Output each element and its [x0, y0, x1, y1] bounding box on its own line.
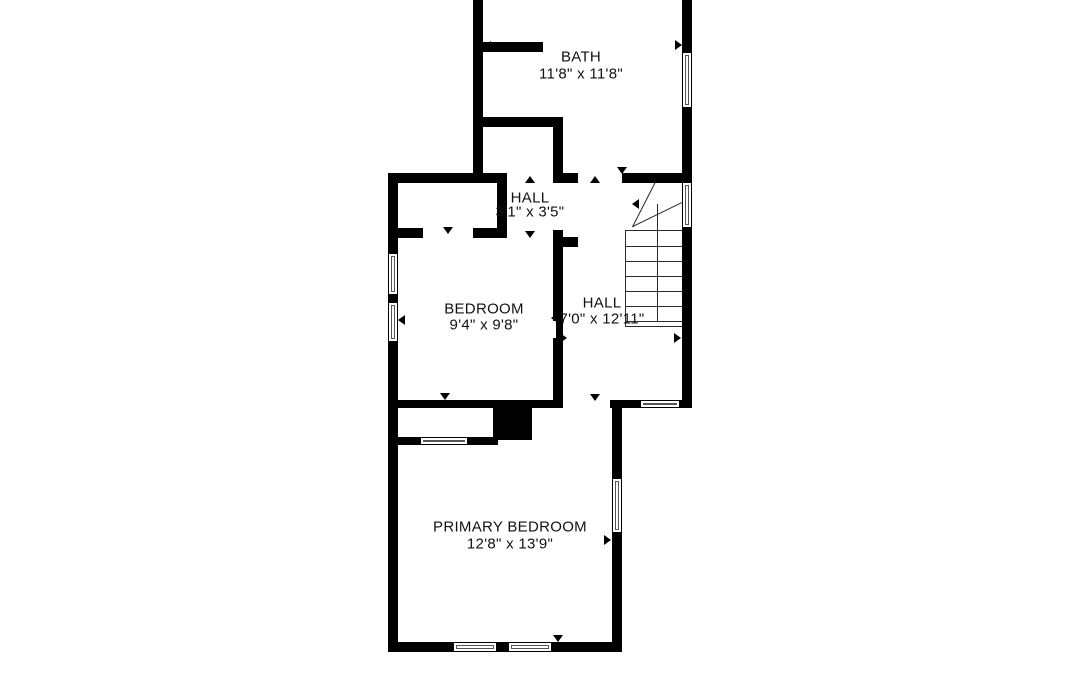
window-marker [388, 253, 398, 295]
window-pane [685, 55, 689, 105]
room-dims: 7'0" x 12'11" [559, 311, 644, 328]
window-marker [508, 642, 552, 652]
door-opening-marker [675, 40, 682, 50]
door-opening-marker [604, 535, 611, 545]
door-opening-marker [525, 231, 535, 238]
window-marker [612, 478, 622, 533]
wall [388, 173, 507, 183]
door-opening-marker [484, 41, 491, 51]
window-pane [423, 440, 465, 442]
wall [682, 108, 692, 183]
wall [612, 533, 622, 652]
wall [388, 400, 563, 408]
stair-tread [625, 276, 683, 277]
window-pane [643, 403, 677, 405]
wall [622, 173, 687, 183]
wall [553, 230, 563, 321]
wall [553, 173, 578, 183]
wall [563, 237, 578, 247]
window-marker [640, 400, 680, 408]
stair-tread [625, 261, 683, 262]
door-opening-marker [590, 176, 600, 183]
room-dims: 12'8" x 13'9" [467, 536, 553, 553]
room-dims: 9'4" x 9'8" [450, 317, 519, 334]
wall [388, 173, 398, 253]
stair-center-line [657, 204, 658, 322]
door-opening-marker [525, 176, 535, 183]
window-marker [420, 437, 468, 445]
wall [473, 117, 563, 127]
room-name: BEDROOM [444, 301, 524, 318]
window-pane [685, 185, 689, 225]
door-opening-marker [551, 313, 558, 323]
door-opening-marker [443, 227, 453, 234]
window-marker [682, 52, 692, 108]
window-marker [453, 642, 497, 652]
door-opening-marker [440, 393, 450, 400]
wall [473, 228, 507, 238]
wall [493, 408, 532, 440]
room-name: PRIMARY BEDROOM [433, 519, 587, 536]
floor-plan-canvas: BATH 11'8" x 11'8" HALL 3'1" x 3'5" BEDR… [0, 0, 1080, 700]
door-opening-marker [553, 635, 563, 642]
room-dims: 3'1" x 3'5" [496, 204, 565, 221]
window-pane [456, 645, 494, 649]
stair-direction-arrow [632, 199, 639, 209]
wall [393, 437, 420, 445]
wall [388, 342, 398, 652]
door-opening-marker [617, 167, 627, 174]
wall [468, 437, 498, 445]
wall [473, 0, 483, 183]
room-dims: 11'8" x 11'8" [539, 66, 623, 83]
window-pane [391, 256, 395, 292]
room-name: BATH [561, 49, 601, 66]
door-opening-marker [590, 394, 600, 401]
window-marker [682, 182, 692, 228]
stair-tread [625, 306, 683, 307]
room-name: HALL [583, 295, 622, 312]
wall [612, 408, 622, 478]
window-pane [511, 645, 549, 649]
door-opening-marker [560, 333, 567, 343]
wall [682, 228, 692, 408]
wall [497, 642, 508, 652]
door-opening-marker [674, 333, 681, 343]
stair-tread [625, 291, 683, 292]
wall [682, 0, 692, 52]
stair-tread [625, 246, 683, 247]
wall [388, 295, 398, 302]
window-pane [391, 305, 395, 339]
window-pane [615, 481, 619, 530]
wall [610, 400, 640, 408]
wall [552, 642, 622, 652]
wall [553, 338, 563, 400]
wall [388, 642, 453, 652]
door-opening-marker [398, 315, 405, 325]
window-marker [388, 302, 398, 342]
